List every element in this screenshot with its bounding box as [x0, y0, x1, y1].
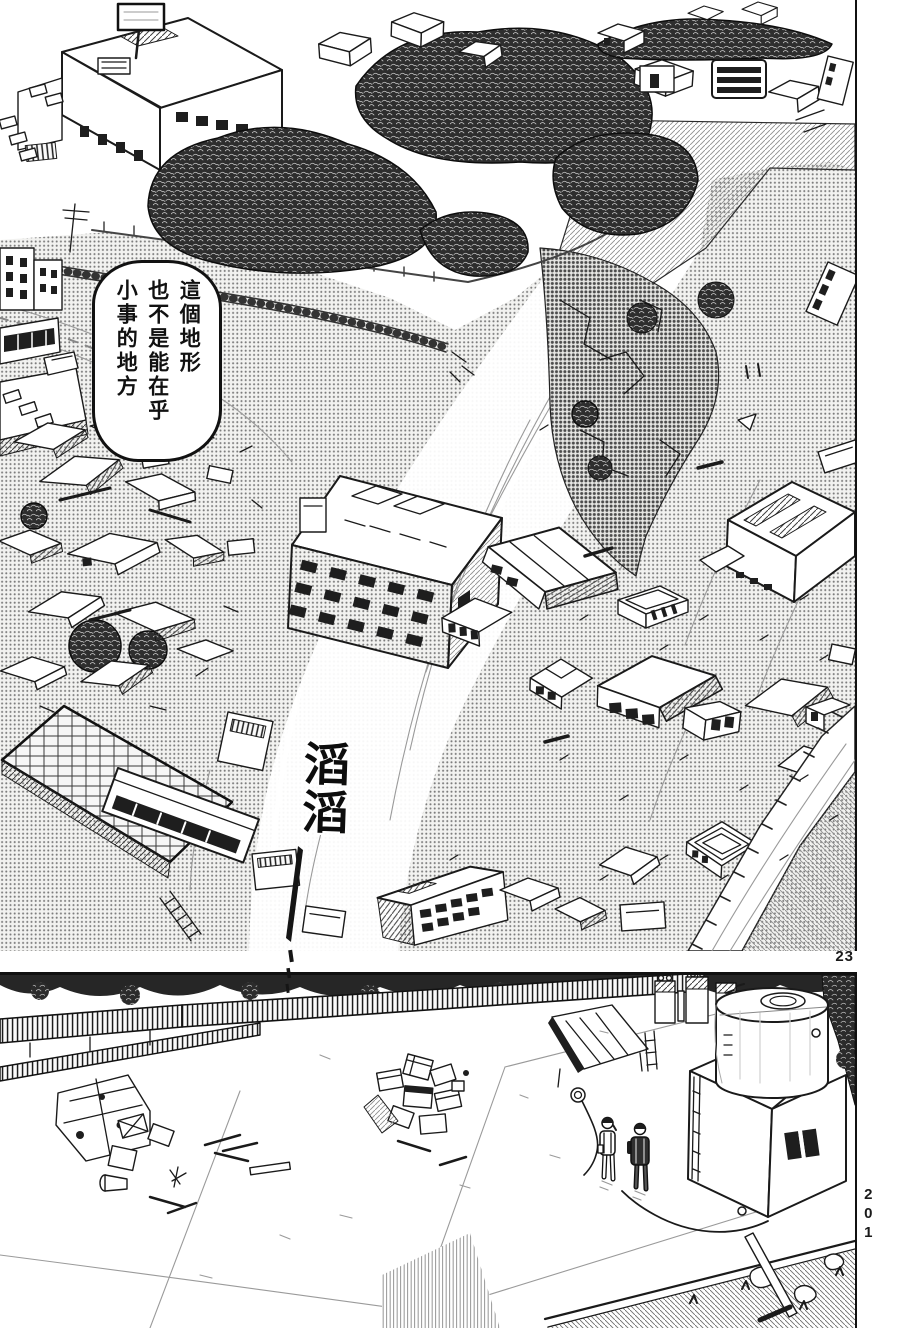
book-page-number: 201 — [860, 1186, 876, 1243]
panel-page-number: 23 — [822, 948, 854, 965]
panel-top-destroyed-town — [0, 0, 857, 951]
banded-building — [712, 60, 766, 98]
speech-line-3: 小事的地方 — [110, 279, 142, 449]
speech-bubble-text: 這個地形 也不是能在乎 小事的地方 — [110, 279, 205, 449]
manga-page: 這個地形 也不是能在乎 小事的地方 滔滔 23 — [0, 0, 924, 1328]
water-tank — [715, 984, 828, 1098]
speech-line-1: 這個地形 — [173, 279, 205, 449]
bottom-panel-art — [0, 975, 855, 1328]
speech-line-2: 也不是能在乎 — [141, 279, 173, 449]
speech-bubble: 這個地形 也不是能在乎 小事的地方 — [92, 260, 222, 462]
sfx-water-rushing: 滔滔 — [288, 739, 357, 837]
sfx-tail-stroke — [282, 846, 310, 996]
panel-bottom-rooftop — [0, 972, 857, 1328]
top-panel-art — [0, 0, 855, 951]
